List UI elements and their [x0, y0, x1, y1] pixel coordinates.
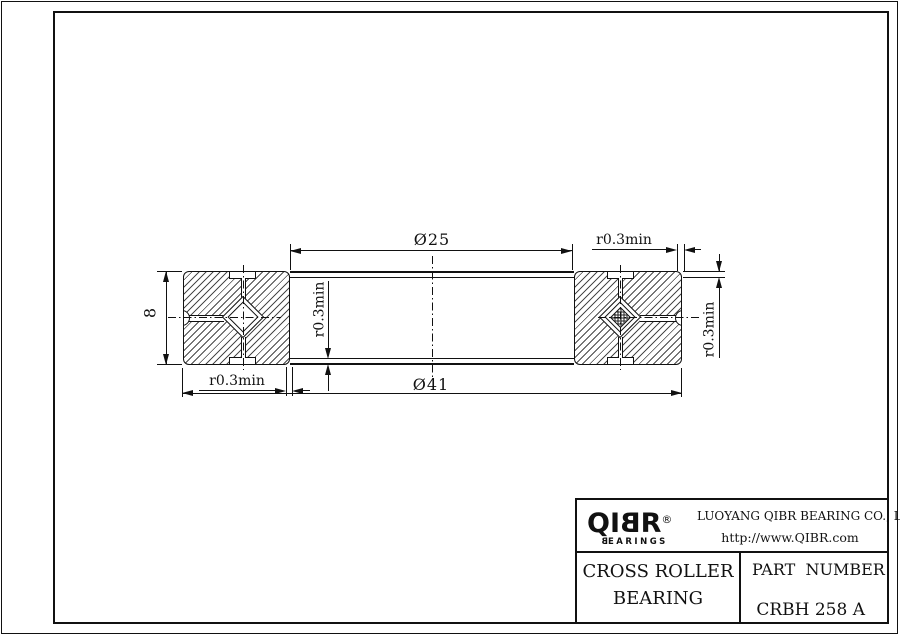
dim-arrow	[684, 247, 695, 253]
dim-arrow	[325, 348, 331, 359]
mirrored-b: B	[620, 510, 641, 537]
drawing-sheet: Ø25 Ø41 8 r0.3min r0.3min r0.3min r0.3mi…	[0, 0, 900, 636]
dim-arrow	[716, 261, 722, 272]
dim-line	[166, 271, 167, 365]
seam-notch	[675, 310, 682, 326]
dim-arrow	[292, 388, 303, 394]
title-block-column-divider	[739, 553, 741, 622]
dim-label-fillet-top-right: r0.3min	[592, 233, 656, 248]
company-name: LUOYANG QIBR BEARING CO., LTD	[697, 509, 883, 523]
right-plug-centerline	[620, 265, 621, 370]
dim-arrow	[666, 247, 677, 253]
dim-label-od: Ø41	[401, 377, 461, 392]
dim-arrow	[275, 388, 286, 394]
title-block-row-divider	[577, 551, 887, 553]
dim-line	[719, 288, 720, 358]
left-ring-section	[183, 271, 290, 365]
right-roller-centerline	[598, 317, 701, 318]
dim-extension-line	[572, 244, 573, 270]
dim-extension-line	[677, 244, 678, 271]
product-name-line1: CROSS ROLLER	[579, 561, 737, 582]
dim-label-fillet-right-vertical: r0.3min	[703, 293, 718, 367]
dim-arrow	[163, 354, 169, 365]
dim-label-width: 8	[143, 302, 158, 324]
dim-arrow	[163, 271, 169, 282]
dim-label-bore: Ø25	[403, 232, 461, 247]
dim-leader-line	[199, 390, 275, 391]
title-block: QIBR® BEARINGS LUOYANG QIBR BEARING CO.,…	[575, 498, 889, 624]
brand-tagline: BEARINGS	[599, 537, 668, 547]
brand-logo-text: QIBR	[587, 508, 661, 539]
dim-arrow	[182, 390, 193, 396]
registered-mark: ®	[661, 513, 672, 526]
brand-logo: QIBR®	[587, 506, 672, 537]
dim-arrow	[325, 364, 331, 375]
dim-arrow	[290, 248, 301, 254]
axis-centerline	[432, 256, 433, 377]
dim-label-fillet-bottom-left: r0.3min	[199, 374, 275, 389]
dim-line	[328, 375, 329, 391]
product-name-line2: BEARING	[579, 588, 737, 609]
dim-extension-line	[157, 364, 182, 365]
seam-notch	[183, 310, 190, 326]
left-roller-centerline	[168, 317, 281, 318]
dim-leader-line	[695, 249, 701, 250]
part-number-label: PART NUMBER	[752, 560, 885, 579]
dim-leader-line	[592, 249, 666, 250]
dim-extension-line	[286, 367, 287, 396]
dim-line	[328, 281, 329, 348]
dim-extension-line	[157, 271, 182, 272]
dim-arrow	[561, 248, 572, 254]
company-website: http://www.QIBR.com	[697, 530, 883, 545]
right-ring-section	[574, 271, 682, 365]
dim-line	[290, 250, 572, 251]
dim-label-fillet-left-vertical: r0.3min	[313, 273, 328, 347]
dim-arrow	[671, 390, 682, 396]
dim-arrow	[716, 277, 722, 288]
left-plug-centerline	[243, 265, 244, 370]
dim-leader-line	[303, 390, 310, 391]
part-number-value: CRBH 258 A	[756, 600, 865, 620]
